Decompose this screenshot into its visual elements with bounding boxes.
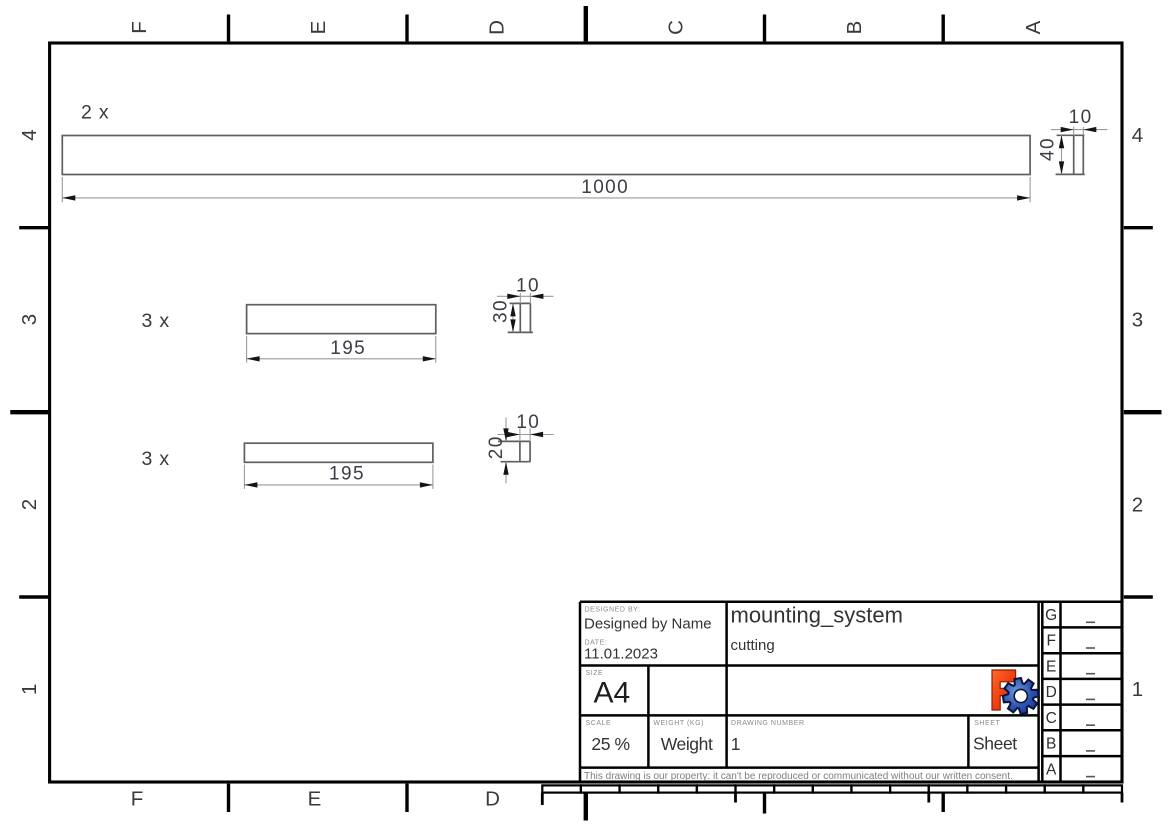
svg-text:1000: 1000 <box>581 177 629 198</box>
svg-text:Weight: Weight <box>661 734 713 754</box>
svg-text:40: 40 <box>1038 137 1059 161</box>
svg-text:2: 2 <box>18 499 41 510</box>
svg-text:D: D <box>486 20 509 35</box>
svg-text:B: B <box>843 21 866 35</box>
svg-text:F: F <box>128 21 151 34</box>
svg-text:3: 3 <box>1132 309 1143 332</box>
svg-text:E: E <box>308 788 322 811</box>
svg-text:4: 4 <box>18 129 41 140</box>
svg-text:Sheet: Sheet <box>973 734 1017 754</box>
svg-text:SCALE: SCALE <box>586 720 612 727</box>
svg-text:20: 20 <box>486 435 507 459</box>
svg-text:E: E <box>1046 658 1056 675</box>
svg-text:DESIGNED BY:: DESIGNED BY: <box>585 607 641 614</box>
svg-text:C: C <box>1046 710 1057 727</box>
svg-text:10: 10 <box>1069 107 1093 128</box>
svg-text:A: A <box>1022 20 1045 34</box>
svg-text:25 %: 25 % <box>591 734 629 754</box>
svg-text:E: E <box>307 21 330 35</box>
svg-text:B: B <box>1046 736 1056 753</box>
svg-text:D: D <box>485 788 500 811</box>
svg-text:D: D <box>1046 684 1057 701</box>
svg-text:G: G <box>1045 607 1057 624</box>
svg-text:3 x: 3 x <box>142 448 170 470</box>
svg-text:3 x: 3 x <box>142 310 170 332</box>
svg-text:Designed by Name: Designed by Name <box>584 616 712 633</box>
svg-text:30: 30 <box>491 299 512 323</box>
svg-text:4: 4 <box>1132 124 1143 147</box>
svg-text:DRAWING NUMBER: DRAWING NUMBER <box>731 720 805 727</box>
svg-text:1: 1 <box>18 684 41 695</box>
svg-text:2 x: 2 x <box>81 101 109 123</box>
svg-text:11.01.2023: 11.01.2023 <box>584 646 658 663</box>
svg-text:F: F <box>1046 633 1055 650</box>
svg-text:2: 2 <box>1132 494 1143 517</box>
svg-text:cutting: cutting <box>731 637 775 654</box>
svg-text:195: 195 <box>329 463 365 484</box>
svg-text:195: 195 <box>330 338 366 359</box>
svg-text:This drawing is our property:: This drawing is our property: it can't b… <box>584 771 1013 782</box>
svg-text:A: A <box>1046 761 1057 778</box>
svg-text:10: 10 <box>516 412 540 433</box>
svg-text:mounting_system: mounting_system <box>731 603 903 628</box>
svg-text:10: 10 <box>516 275 540 296</box>
svg-text:1: 1 <box>731 734 741 754</box>
svg-text:3: 3 <box>18 314 41 325</box>
svg-text:A4: A4 <box>594 677 631 710</box>
svg-text:F: F <box>131 788 144 811</box>
svg-text:WEIGHT (KG): WEIGHT (KG) <box>653 720 704 727</box>
svg-text:SHEET: SHEET <box>974 720 1000 727</box>
svg-text:1: 1 <box>1132 678 1143 701</box>
svg-text:C: C <box>664 20 687 35</box>
